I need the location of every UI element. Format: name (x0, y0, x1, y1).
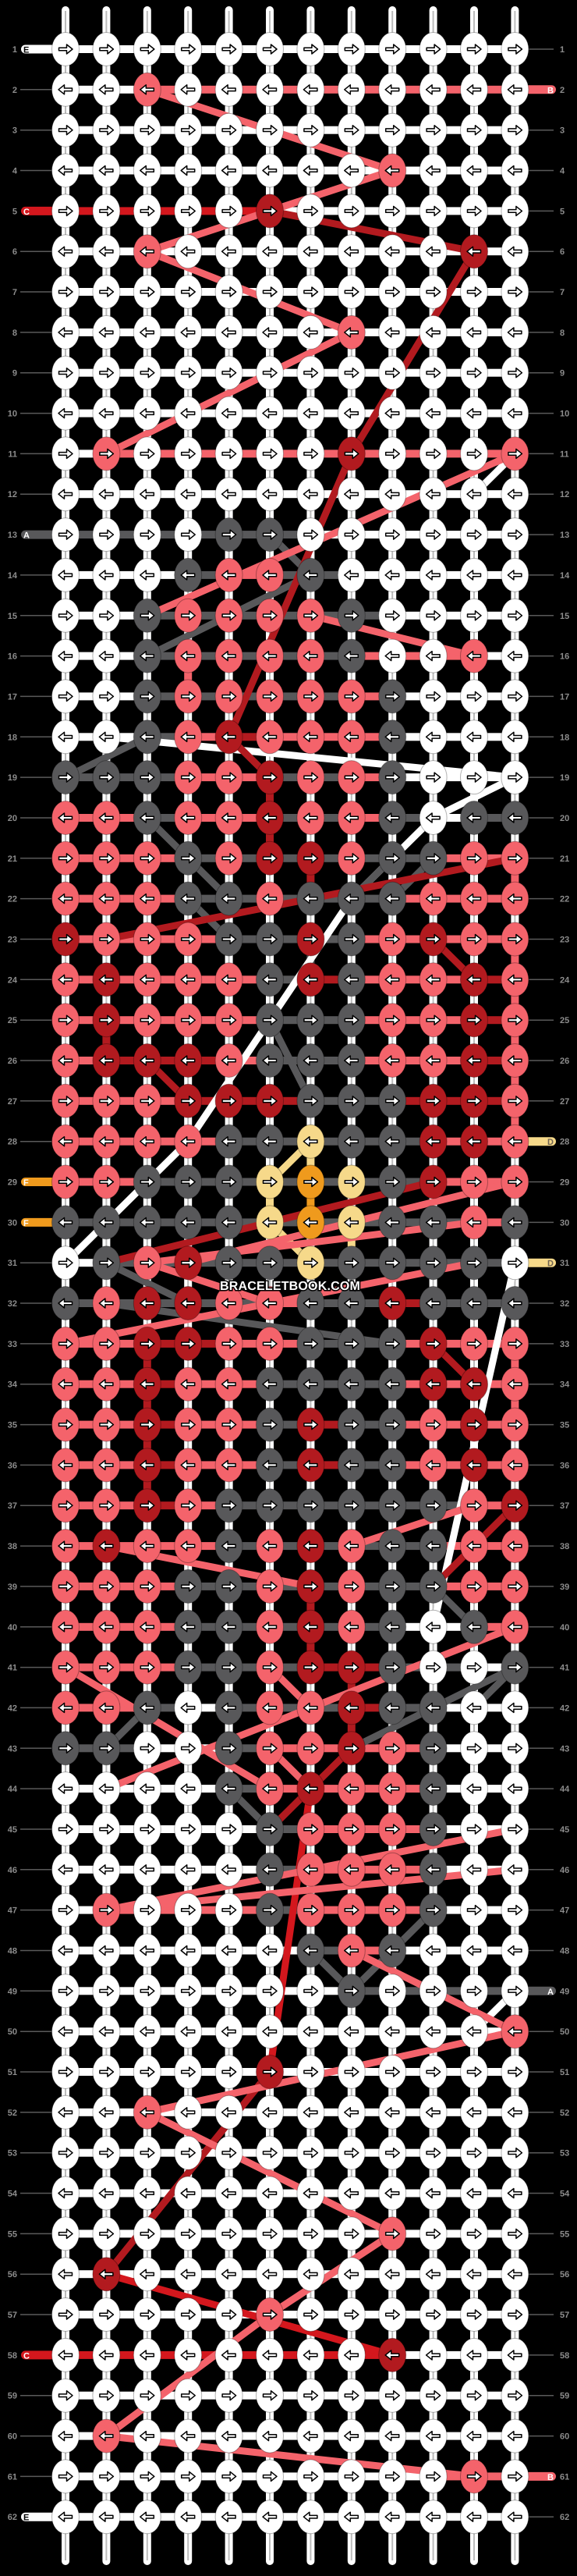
svg-text:41: 41 (8, 1664, 17, 1673)
svg-text:3: 3 (12, 126, 17, 136)
svg-text:56: 56 (560, 2270, 569, 2279)
svg-text:3: 3 (560, 126, 565, 136)
svg-text:59: 59 (8, 2392, 17, 2401)
svg-text:30: 30 (560, 1218, 569, 1228)
svg-text:36: 36 (8, 1461, 17, 1470)
svg-text:51: 51 (8, 2068, 17, 2077)
svg-text:10: 10 (560, 410, 569, 419)
svg-text:5: 5 (12, 207, 17, 216)
svg-text:41: 41 (560, 1664, 569, 1673)
svg-text:BRACELETBOOK.COM: BRACELETBOOK.COM (220, 1280, 360, 1293)
svg-text:26: 26 (8, 1057, 17, 1066)
svg-text:18: 18 (560, 733, 569, 742)
svg-text:61: 61 (560, 2472, 569, 2482)
svg-text:28: 28 (8, 1138, 17, 1147)
svg-text:16: 16 (8, 652, 17, 662)
svg-text:36: 36 (560, 1461, 569, 1470)
svg-text:45: 45 (8, 1825, 17, 1835)
svg-text:31: 31 (8, 1259, 17, 1268)
svg-text:8: 8 (560, 329, 565, 338)
svg-text:62: 62 (8, 2513, 17, 2522)
svg-text:20: 20 (560, 814, 569, 823)
svg-text:8: 8 (12, 329, 17, 338)
svg-text:22: 22 (8, 895, 17, 904)
svg-text:2: 2 (560, 86, 565, 95)
svg-text:52: 52 (8, 2109, 17, 2118)
svg-text:7: 7 (12, 288, 17, 297)
svg-text:4: 4 (560, 167, 565, 176)
svg-text:53: 53 (8, 2149, 17, 2159)
svg-text:26: 26 (560, 1057, 569, 1066)
svg-text:4: 4 (12, 167, 18, 176)
svg-text:62: 62 (560, 2513, 569, 2522)
svg-text:23: 23 (560, 936, 569, 945)
svg-text:44: 44 (560, 1785, 570, 1794)
svg-text:48: 48 (8, 1947, 17, 1956)
svg-text:25: 25 (560, 1016, 569, 1025)
svg-text:45: 45 (560, 1825, 569, 1835)
svg-text:5: 5 (560, 207, 565, 216)
svg-text:58: 58 (560, 2351, 569, 2361)
svg-text:54: 54 (560, 2190, 570, 2199)
svg-text:29: 29 (560, 1178, 569, 1188)
svg-text:40: 40 (560, 1623, 569, 1633)
svg-text:1: 1 (12, 45, 17, 55)
svg-text:C: C (23, 208, 30, 217)
svg-text:12: 12 (8, 490, 17, 499)
svg-text:18: 18 (8, 733, 17, 742)
svg-text:42: 42 (560, 1704, 569, 1713)
svg-text:19: 19 (560, 773, 569, 783)
svg-text:C: C (23, 2351, 30, 2361)
svg-text:17: 17 (8, 692, 17, 702)
svg-text:A: A (547, 1988, 554, 1997)
svg-text:50: 50 (8, 2027, 17, 2037)
svg-text:46: 46 (8, 1866, 17, 1875)
svg-text:34: 34 (560, 1380, 570, 1390)
svg-text:11: 11 (8, 449, 17, 459)
svg-text:24: 24 (8, 975, 18, 985)
svg-text:29: 29 (8, 1178, 17, 1188)
svg-text:22: 22 (560, 895, 569, 904)
svg-text:40: 40 (8, 1623, 17, 1633)
svg-text:47: 47 (560, 1906, 569, 1916)
svg-text:17: 17 (560, 692, 569, 702)
svg-text:55: 55 (8, 2230, 17, 2239)
svg-text:20: 20 (8, 814, 17, 823)
svg-text:42: 42 (8, 1704, 17, 1713)
svg-text:B: B (547, 2473, 554, 2482)
svg-text:48: 48 (560, 1947, 569, 1956)
svg-text:39: 39 (8, 1583, 17, 1592)
svg-text:35: 35 (560, 1421, 569, 1430)
svg-text:19: 19 (8, 773, 17, 783)
svg-text:56: 56 (8, 2270, 17, 2279)
svg-text:9: 9 (560, 369, 565, 378)
svg-text:33: 33 (560, 1340, 569, 1349)
svg-text:54: 54 (8, 2190, 18, 2199)
svg-text:34: 34 (8, 1380, 18, 1390)
svg-text:43: 43 (560, 1744, 569, 1753)
svg-text:38: 38 (8, 1542, 17, 1551)
svg-text:43: 43 (8, 1744, 17, 1753)
svg-text:F: F (23, 1178, 29, 1188)
svg-text:60: 60 (8, 2432, 17, 2442)
svg-text:46: 46 (560, 1866, 569, 1875)
svg-text:32: 32 (8, 1299, 17, 1309)
svg-text:14: 14 (560, 571, 570, 581)
svg-text:49: 49 (8, 1987, 17, 1996)
svg-text:12: 12 (560, 490, 569, 499)
svg-text:30: 30 (8, 1218, 17, 1228)
svg-text:32: 32 (560, 1299, 569, 1309)
svg-text:24: 24 (560, 975, 570, 985)
svg-text:57: 57 (560, 2311, 569, 2320)
svg-text:B: B (547, 86, 554, 95)
svg-text:53: 53 (560, 2149, 569, 2159)
svg-text:37: 37 (560, 1501, 569, 1511)
svg-text:6: 6 (560, 247, 565, 257)
svg-text:13: 13 (8, 531, 17, 540)
svg-text:55: 55 (560, 2230, 569, 2239)
svg-text:57: 57 (8, 2311, 17, 2320)
svg-text:31: 31 (560, 1259, 569, 1268)
svg-text:15: 15 (560, 612, 569, 621)
svg-text:D: D (547, 1138, 554, 1147)
svg-text:2: 2 (12, 86, 17, 95)
svg-text:F: F (23, 1219, 29, 1228)
svg-text:61: 61 (8, 2472, 17, 2482)
svg-text:23: 23 (8, 936, 17, 945)
svg-text:38: 38 (560, 1542, 569, 1551)
svg-text:27: 27 (8, 1097, 17, 1107)
svg-text:E: E (23, 2514, 29, 2523)
svg-text:1: 1 (560, 45, 565, 55)
svg-text:21: 21 (560, 855, 569, 864)
svg-text:58: 58 (8, 2351, 17, 2361)
svg-text:28: 28 (560, 1138, 569, 1147)
svg-text:6: 6 (12, 247, 17, 257)
svg-text:11: 11 (560, 449, 569, 459)
svg-text:47: 47 (8, 1906, 17, 1916)
svg-text:16: 16 (560, 652, 569, 662)
svg-text:7: 7 (560, 288, 565, 297)
svg-text:44: 44 (8, 1785, 18, 1794)
svg-text:49: 49 (560, 1987, 569, 1996)
svg-text:27: 27 (560, 1097, 569, 1107)
svg-text:10: 10 (8, 410, 17, 419)
svg-text:D: D (547, 1260, 554, 1269)
svg-text:50: 50 (560, 2027, 569, 2037)
svg-text:59: 59 (560, 2392, 569, 2401)
svg-text:9: 9 (12, 369, 17, 378)
svg-text:35: 35 (8, 1421, 17, 1430)
svg-text:52: 52 (560, 2109, 569, 2118)
svg-text:33: 33 (8, 1340, 17, 1349)
svg-text:25: 25 (8, 1016, 17, 1025)
svg-text:51: 51 (560, 2068, 569, 2077)
svg-text:39: 39 (560, 1583, 569, 1592)
svg-text:15: 15 (8, 612, 17, 621)
svg-text:21: 21 (8, 855, 17, 864)
svg-text:37: 37 (8, 1501, 17, 1511)
svg-text:13: 13 (560, 531, 569, 540)
svg-text:60: 60 (560, 2432, 569, 2442)
svg-text:14: 14 (8, 571, 18, 581)
svg-text:A: A (23, 531, 30, 541)
svg-text:E: E (23, 46, 29, 55)
